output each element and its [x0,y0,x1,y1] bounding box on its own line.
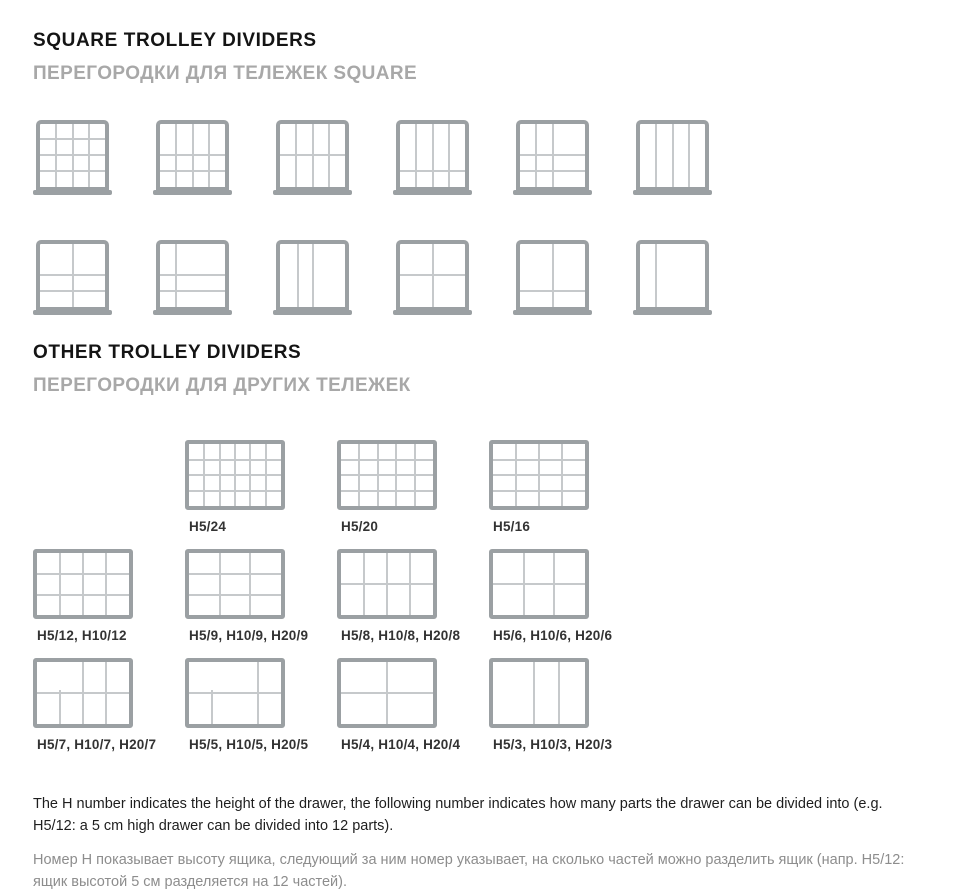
divider-item: H5/6, H10/6, H20/6 [489,549,641,643]
grid-line-horizontal [37,594,129,596]
grid-line-horizontal [40,170,105,172]
divider-diagram [185,440,285,510]
tray-frame [276,240,349,311]
divider-label: H5/7, H10/7, H20/7 [33,737,185,752]
divider-label: H5/8, H10/8, H20/8 [337,628,489,643]
tray-frame [156,120,229,191]
divider-item: H5/8, H10/8, H20/8 [337,549,489,643]
tray-frame [636,120,709,191]
divider-diagram [185,549,285,619]
grid-line-horizontal [189,490,281,492]
grid-line-horizontal [160,274,225,276]
tray-base [393,190,472,195]
square-divider-row-2 [33,240,927,315]
square-section-subtitle-ru: ПЕРЕГОРОДКИ ДЛЯ ТЕЛЕЖЕК SQUARE [33,63,927,85]
grid-line-horizontal [493,490,585,492]
grid-line-vertical [59,690,61,725]
grid-line-horizontal [493,474,585,476]
grid-line-horizontal [160,154,225,156]
tray-frame [516,240,589,311]
grid-line-vertical [432,124,434,187]
divider-item: H5/20 [337,440,489,534]
square-divider-diagram [393,240,472,315]
divider-label: H5/24 [185,519,337,534]
square-divider-diagram [633,240,712,315]
grid-line-horizontal [341,692,433,694]
grid-line-horizontal [341,490,433,492]
square-divider-row-1 [33,120,927,195]
square-divider-diagram [33,120,112,195]
divider-item: H5/5, H10/5, H20/5 [185,658,337,752]
tray-frame [636,240,709,311]
divider-item: H5/12, H10/12 [33,549,185,643]
tray-frame [396,240,469,311]
divider-diagram [33,658,133,728]
grid-line-horizontal [160,290,225,292]
tray-base [393,310,472,315]
grid-line-horizontal [520,154,585,156]
tray-base [633,190,712,195]
divider-diagram [337,549,437,619]
grid-line-vertical [688,124,690,187]
grid-line-vertical [415,124,417,187]
grid-line-vertical [297,244,299,307]
tray-frame [276,120,349,191]
other-section: OTHER TROLLEY DIVIDERS ПЕРЕГОРОДКИ ДЛЯ Д… [33,342,927,753]
divider-label: H5/16 [489,519,641,534]
divider-diagram [33,549,133,619]
grid-line-horizontal [37,692,129,694]
divider-item: H5/24 [185,440,337,534]
tray-base [153,310,232,315]
divider-label: H5/20 [337,519,489,534]
square-divider-diagram [513,120,592,195]
grid-line-horizontal [341,459,433,461]
divider-label: H5/12, H10/12 [33,628,185,643]
divider-item: H5/9, H10/9, H20/9 [185,549,337,643]
grid-line-horizontal [189,594,281,596]
grid-line-horizontal [493,459,585,461]
divider-item: H5/3, H10/3, H20/3 [489,658,641,752]
divider-diagram [489,658,589,728]
other-divider-row-3: H5/7, H10/7, H20/7H5/5, H10/5, H20/5H5/4… [33,658,927,752]
square-divider-diagram [513,240,592,315]
tray-base [513,310,592,315]
tray-base [633,310,712,315]
grid-line-vertical [105,553,107,615]
grid-line-horizontal [40,290,105,292]
square-divider-diagram [393,120,472,195]
other-divider-row-1: H5/24H5/20H5/16 [33,440,927,534]
divider-diagram [489,440,589,510]
grid-line-horizontal [400,274,465,276]
grid-line-horizontal [37,573,129,575]
grid-line-vertical [249,553,251,615]
grid-line-horizontal [189,474,281,476]
divider-label: H5/5, H10/5, H20/5 [185,737,337,752]
grid-line-vertical [672,124,674,187]
divider-item: H5/4, H10/4, H20/4 [337,658,489,752]
tray-frame [516,120,589,191]
footnotes: The H number indicates the height of the… [33,794,927,893]
divider-diagram [489,549,589,619]
grid-line-horizontal [341,583,433,585]
grid-line-vertical [312,244,314,307]
grid-line-horizontal [520,290,585,292]
divider-label: H5/3, H10/3, H20/3 [489,737,641,752]
square-divider-diagram [33,240,112,315]
tray-frame [396,120,469,191]
grid-line-vertical [448,124,450,187]
square-section-title: SQUARE TROLLEY DIVIDERS [33,30,927,52]
grid-line-vertical [59,553,61,615]
grid-line-horizontal [189,692,281,694]
divider-diagram [337,658,437,728]
grid-line-horizontal [160,170,225,172]
grid-line-vertical [533,662,535,724]
square-divider-diagram [273,120,352,195]
divider-label: H5/6, H10/6, H20/6 [489,628,641,643]
grid-line-vertical [82,553,84,615]
grid-line-vertical [558,662,560,724]
grid-line-vertical [655,124,657,187]
divider-item: H5/16 [489,440,641,534]
other-section-subtitle-ru: ПЕРЕГОРОДКИ ДЛЯ ДРУГИХ ТЕЛЕЖЕК [33,375,927,397]
square-divider-diagram [273,240,352,315]
tray-frame [36,240,109,311]
grid-line-horizontal [280,154,345,156]
tray-base [33,190,112,195]
tray-base [273,310,352,315]
grid-line-horizontal [493,583,585,585]
grid-line-vertical [552,244,554,307]
tray-base [33,310,112,315]
square-divider-diagram [153,240,232,315]
catalog-page: SQUARE TROLLEY DIVIDERS ПЕРЕГОРОДКИ ДЛЯ … [0,0,960,893]
grid-line-horizontal [40,154,105,156]
tray-frame [156,240,229,311]
grid-line-horizontal [40,138,105,140]
grid-line-horizontal [40,274,105,276]
divider-label: H5/4, H10/4, H20/4 [337,737,489,752]
grid-line-horizontal [400,170,465,172]
grid-line-vertical [219,553,221,615]
tray-base [513,190,592,195]
divider-diagram [337,440,437,510]
divider-diagram [185,658,285,728]
square-divider-diagram [153,120,232,195]
divider-item: H5/7, H10/7, H20/7 [33,658,185,752]
footnote-en: The H number indicates the height of the… [33,794,927,838]
tray-base [153,190,232,195]
tray-frame [36,120,109,191]
square-divider-diagram [633,120,712,195]
grid-line-vertical [655,244,657,307]
grid-line-horizontal [341,474,433,476]
other-divider-row-2: H5/12, H10/12H5/9, H10/9, H20/9H5/8, H10… [33,549,927,643]
grid-line-horizontal [520,170,585,172]
tray-base [273,190,352,195]
divider-label: H5/9, H10/9, H20/9 [185,628,337,643]
grid-line-vertical [211,690,213,725]
grid-line-horizontal [189,573,281,575]
other-section-title: OTHER TROLLEY DIVIDERS [33,342,927,364]
grid-line-horizontal [189,459,281,461]
